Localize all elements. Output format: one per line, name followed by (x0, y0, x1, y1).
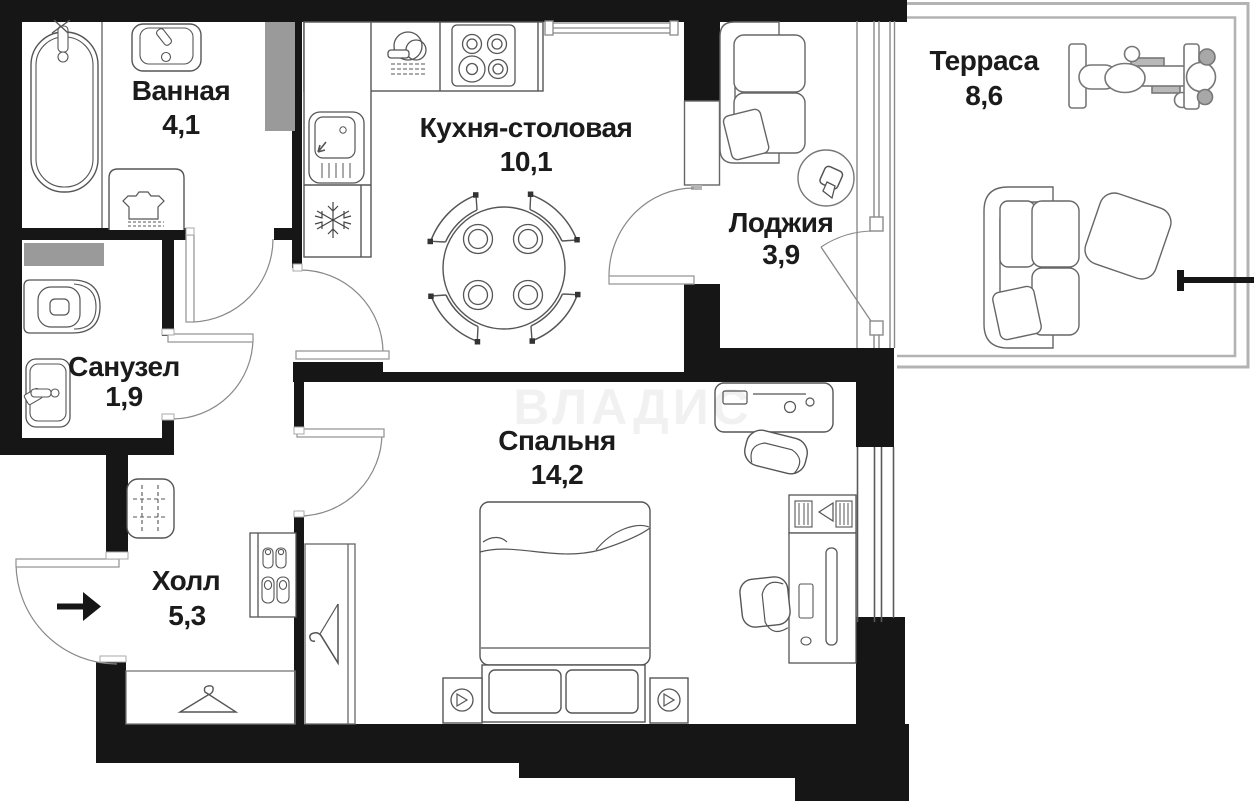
svg-text:5,3: 5,3 (168, 600, 205, 631)
svg-text:Холл: Холл (152, 565, 220, 596)
svg-text:Кухня-столовая: Кухня-столовая (420, 112, 633, 143)
svg-text:3,9: 3,9 (762, 239, 799, 270)
svg-text:Санузел: Санузел (68, 351, 180, 382)
svg-text:Лоджия: Лоджия (729, 207, 834, 238)
svg-text:Терраса: Терраса (929, 45, 1039, 76)
svg-text:14,2: 14,2 (531, 459, 584, 490)
svg-text:8,6: 8,6 (965, 80, 1002, 111)
svg-text:Спальня: Спальня (498, 425, 615, 456)
svg-text:4,1: 4,1 (162, 109, 199, 140)
svg-text:10,1: 10,1 (500, 146, 553, 177)
svg-text:1,9: 1,9 (105, 381, 142, 412)
svg-text:Ванная: Ванная (132, 75, 231, 106)
